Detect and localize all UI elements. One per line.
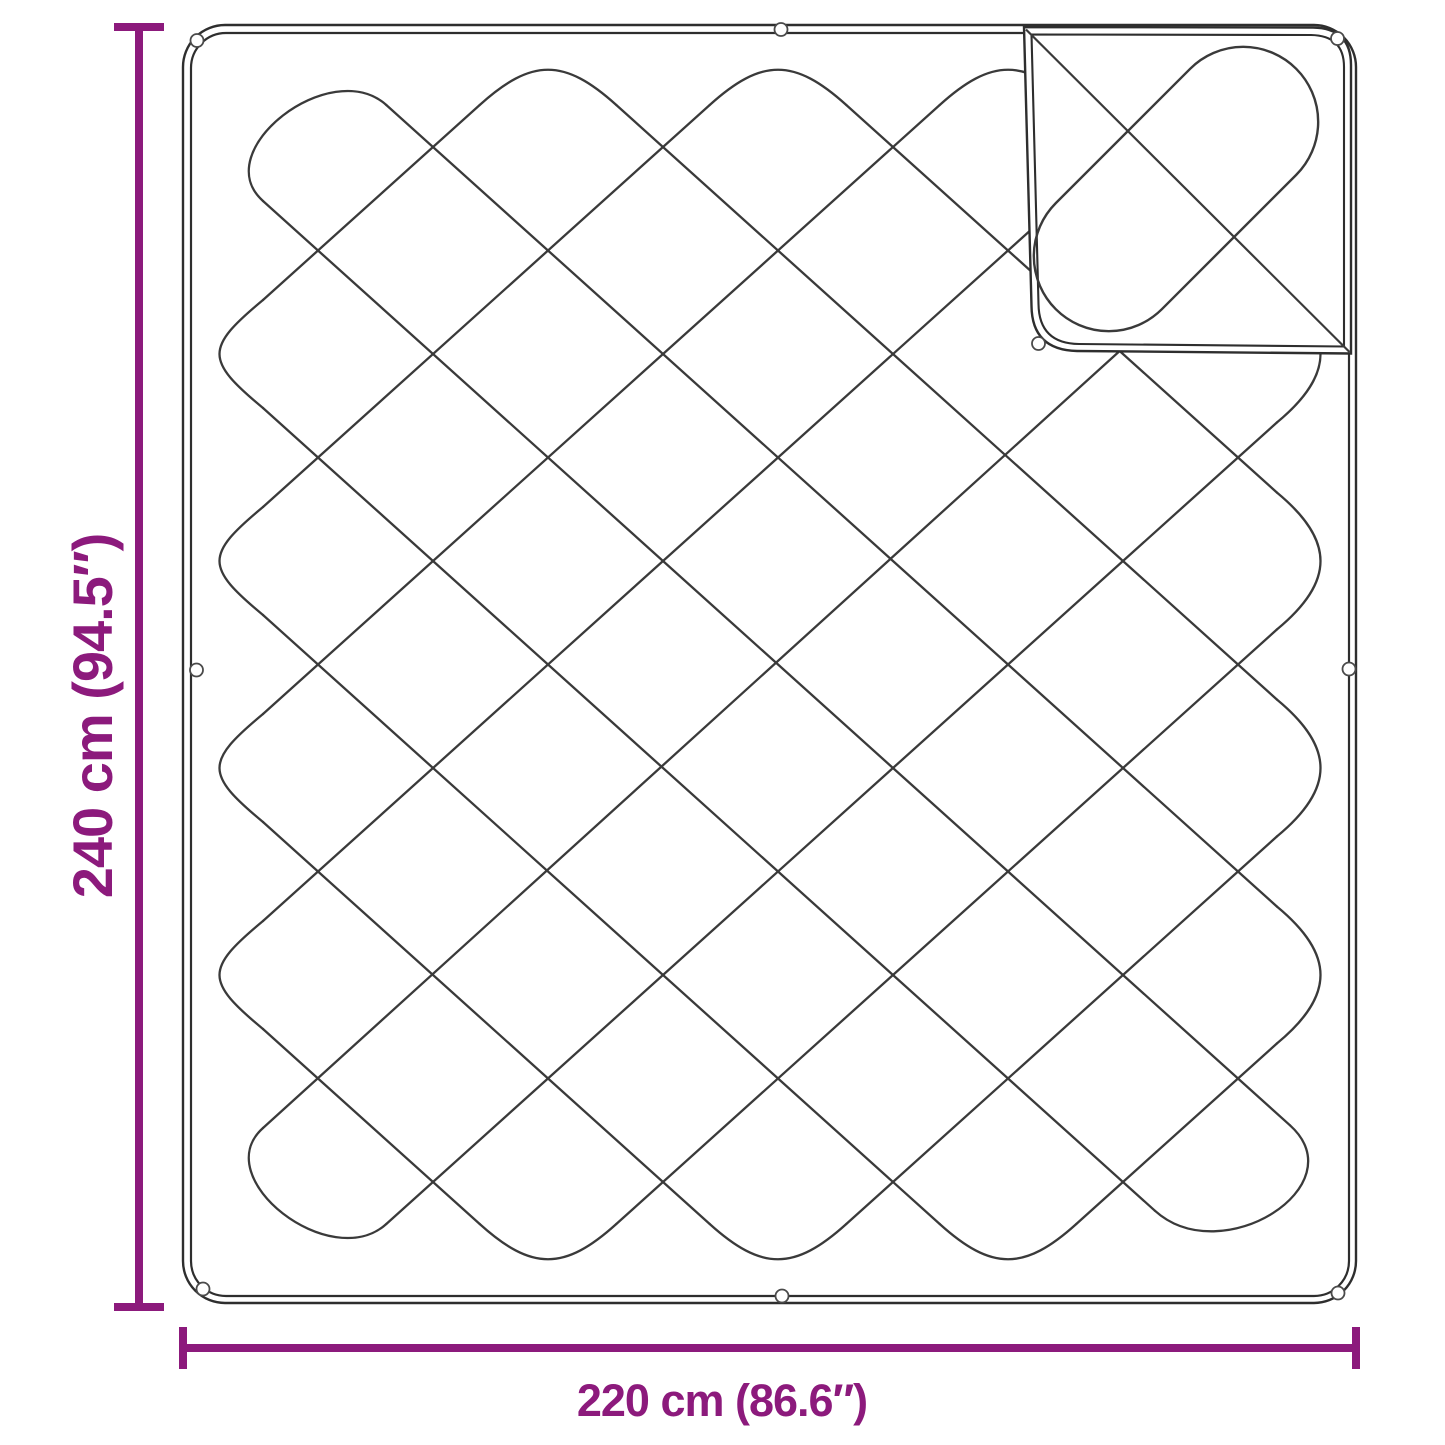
stitch-line <box>263 105 940 714</box>
stitch-lobe-bottom <box>710 1224 847 1259</box>
height-dimension: 240 cm (94.5″) <box>61 27 164 1307</box>
stitch-lobe-left <box>220 507 264 615</box>
stitch-line <box>263 615 940 1224</box>
stitch-line <box>846 836 1277 1224</box>
diagram-canvas: 240 cm (94.5″) 220 cm (86.6″) <box>0 0 1445 1445</box>
stitch-line <box>263 1029 480 1224</box>
width-dimension-line <box>183 1327 1356 1369</box>
stitch-lobe-right <box>1277 700 1321 837</box>
stitch-lobe-corner-br <box>1155 1125 1308 1231</box>
stitch-lobe-right <box>1277 493 1321 630</box>
width-dimension-label: 220 cm (86.6″) <box>577 1375 867 1426</box>
stitch-line <box>263 105 480 300</box>
stitch-lobe-bottom <box>940 1224 1077 1259</box>
stitch-lobe-top <box>480 70 617 105</box>
hang-loop <box>190 664 203 677</box>
hang-loop <box>191 34 204 47</box>
stitch-line <box>263 105 710 507</box>
hang-loop <box>776 1290 789 1303</box>
stitch-lobe-right <box>1277 907 1321 1044</box>
hang-loop <box>1332 1287 1345 1300</box>
stitch-lobe-left <box>220 300 264 408</box>
height-dimension-label: 240 cm (94.5″) <box>61 534 124 899</box>
stitch-line <box>263 822 710 1224</box>
width-dimension: 220 cm (86.6″) <box>183 1327 1356 1426</box>
stitch-lobe-top <box>710 70 847 105</box>
stitch-lobe-corner-bl <box>249 1128 386 1238</box>
folded-corner-flap <box>1003 16 1351 362</box>
stitch-lobe-left <box>220 714 264 822</box>
stitch-lobe-left <box>220 921 264 1029</box>
stitch-line <box>263 408 1155 1211</box>
stitch-line <box>1076 1043 1277 1224</box>
hang-loop <box>1032 337 1045 350</box>
hang-loop <box>1331 32 1344 45</box>
stitch-lobe-corner-tl <box>249 91 386 201</box>
stitch-line <box>386 422 1277 1224</box>
hang-loop <box>1343 663 1356 676</box>
hang-loop <box>197 1283 210 1296</box>
hang-loop <box>775 23 788 36</box>
stitch-lobe-bottom <box>480 1224 617 1259</box>
blanket-dimension-diagram: 240 cm (94.5″) 220 cm (86.6″) <box>0 0 1445 1445</box>
